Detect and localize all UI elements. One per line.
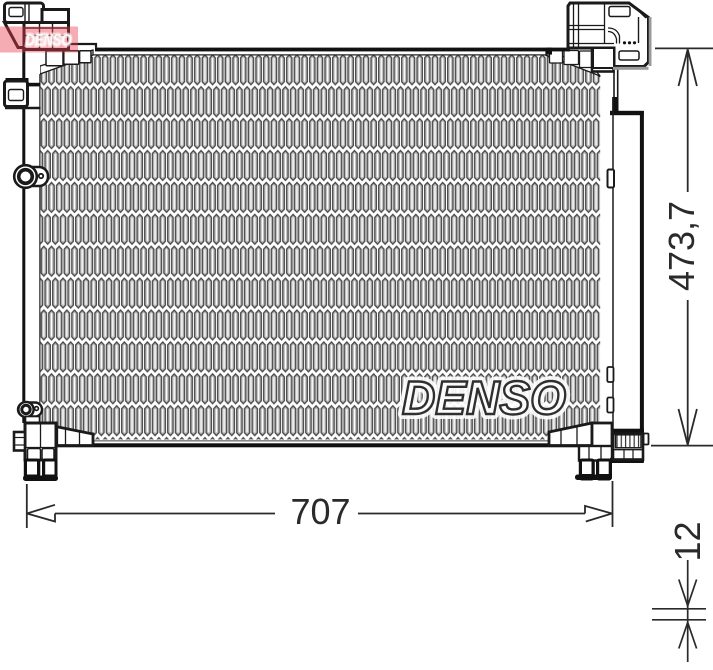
- svg-text:473,7: 473,7: [661, 201, 702, 291]
- svg-text:DENSO: DENSO: [402, 371, 566, 424]
- svg-text:12: 12: [667, 521, 708, 561]
- svg-text:DENSO: DENSO: [26, 31, 72, 49]
- svg-text:707: 707: [290, 491, 350, 532]
